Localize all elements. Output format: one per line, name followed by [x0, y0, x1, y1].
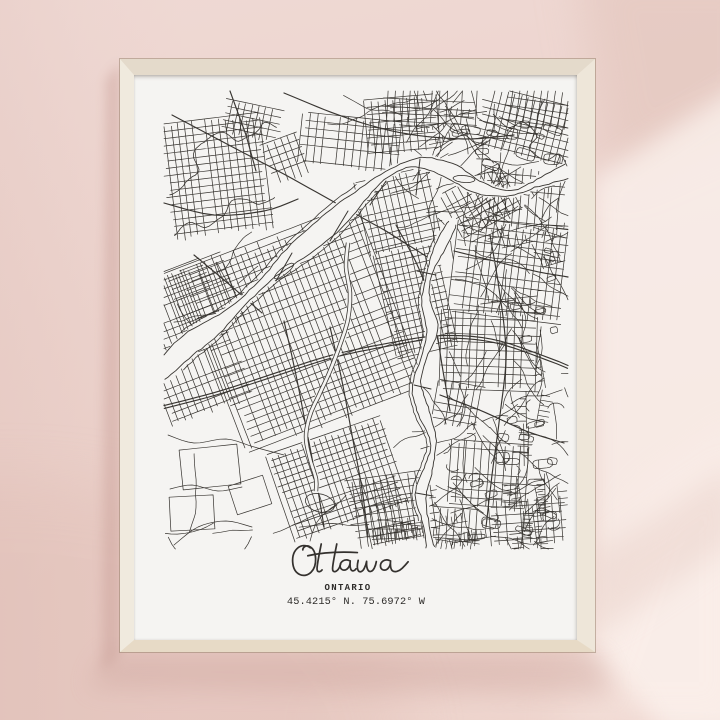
svg-text:45.4215° N. 75.6972° W: 45.4215° N. 75.6972° W [287, 596, 426, 608]
svg-text:ONTARIO: ONTARIO [325, 583, 372, 593]
